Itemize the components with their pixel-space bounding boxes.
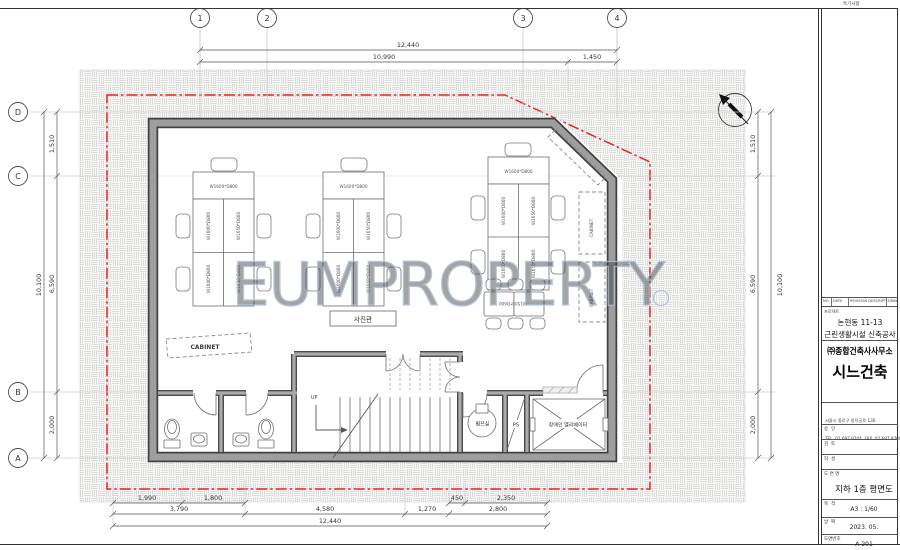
sheet-top-border [0,8,898,9]
grid-bubble-label: 3 [520,14,525,23]
dim-text: 12,440 [319,517,341,525]
desk-label: W1650*D800 [236,212,241,240]
desk-label: W1600*D800 [336,212,341,240]
number-row: 도면번호 A-201 [822,534,898,550]
grid-bubble-label: B [15,388,21,397]
stamp-box: ㈜종합건축사사무소 시느건축 [822,340,898,410]
dim-text: 1,510 [48,135,56,153]
date-value: 2023. 05. [832,524,896,531]
stair-up-label: UP [311,395,318,401]
dim-text: 1,270 [418,505,436,513]
desk-label: W1600*D800 [206,265,211,293]
dimensions-right: 1,510 6,590 2,000 10,100 [749,109,784,461]
revision-col-no: NO [822,298,832,306]
desk-label: W1650*D800 [531,197,536,225]
project-line1: 논현동 11-13 [822,317,898,329]
pipe-shaft-label: PS [513,423,519,429]
dim-text: 10,100 [776,274,784,296]
scale-row: 축 척 A3 : 1/60 [822,499,898,517]
dim-text: 6,590 [749,275,757,293]
company-logo: 시느건축 [822,361,898,382]
title-block: NO DATE REVISION DESCRIPT DRAWN 프로젝트 논현동… [822,8,898,545]
desk-label: W1600*D800 [206,212,211,240]
dim-text: 2,800 [489,505,507,513]
drawing-sheet: W1600*D800 W1600*D800 W1650*D800 W1600*D… [0,0,900,550]
grid-bubble-label: 1 [197,14,202,23]
dim-text: 12,440 [397,41,419,49]
dim-text: 4,580 [316,505,334,513]
desk-label: W1600*D800 [504,169,532,174]
dim-text: 450 [451,494,463,502]
dim-text: 1,800 [204,494,222,502]
cabinet-label: CABINET [190,344,220,351]
date-row: 날 짜 2023. 05. [822,517,898,534]
grid-bubble-label: 2 [264,14,269,23]
dim-text: 10,100 [35,274,43,296]
dim-text: 6,590 [48,275,56,293]
notes-label: 특기사항 [843,1,860,7]
desk-label: W1600*D800 [209,184,237,189]
dim-text: 10,990 [373,53,395,61]
dim-text: 2,000 [48,416,56,434]
approve-row: 승 인 [822,424,898,439]
dim-text: 1,450 [583,53,601,61]
project-label: 프로젝트 [824,309,839,315]
review-label: 검 토 [824,441,835,447]
revision-col-desc: REVISION DESCRIPT [849,298,887,306]
drawing-name-row: 도 면 명 지하 1층 평면도 [822,469,898,499]
watermark-text: EUMPROPERTY [232,250,666,320]
sheet-bottom-border [0,544,900,545]
project-name: 논현동 11-13 근린생활시설 신축공사 [822,317,898,341]
grid-bubble-label: A [15,454,21,463]
drawing-name-label: 도 면 명 [824,471,839,477]
number-value: A-201 [832,541,896,548]
pump-room-label: 펌프실 [476,421,490,428]
grid-bubble-label: D [15,108,21,117]
draft-row: 작 성 [822,454,898,469]
dimensions-left: 1,510 6,590 2,000 10,100 [35,109,60,461]
scale-value: A3 : 1/60 [832,506,896,513]
cabinet-label: CABINET [589,218,594,237]
draft-label: 작 성 [824,456,835,462]
drawing-name: 지하 1층 평면도 [832,483,896,495]
grid-bubble-label: C [15,172,21,181]
elevator-label: 장애인 엘리베이터 [549,422,587,429]
approve-label: 승 인 [824,426,835,432]
revision-col-drawn: DRAWN [887,298,898,306]
desk-label: W1600*D800 [501,197,506,225]
dim-text: 2,350 [497,494,515,502]
titleblock-outer-border [818,8,819,545]
floor-plan-canvas: W1600*D800 W1600*D800 W1650*D800 W1600*D… [0,0,900,550]
revision-header: NO DATE REVISION DESCRIPT DRAWN [822,297,898,307]
review-row: 검 토 [822,439,898,454]
dim-text: 1,510 [749,135,757,153]
address-box: 서울시 종로구 창덕궁로 136 TEL. 02.697.9704 FAX. 0… [822,402,898,424]
desk-label: W1600*D800 [339,184,367,189]
dim-text: 2,000 [749,416,757,434]
revision-col-date: DATE [832,298,849,306]
desk-label: W1650*D800 [366,212,371,240]
grid-bubble-label: 4 [614,14,619,23]
dim-text: 3,790 [170,505,188,513]
dim-text: 1,990 [138,494,156,502]
watermark: EUMPROPERTY [232,250,669,320]
company-stamp: ㈜종합건축사사무소 [825,345,895,357]
